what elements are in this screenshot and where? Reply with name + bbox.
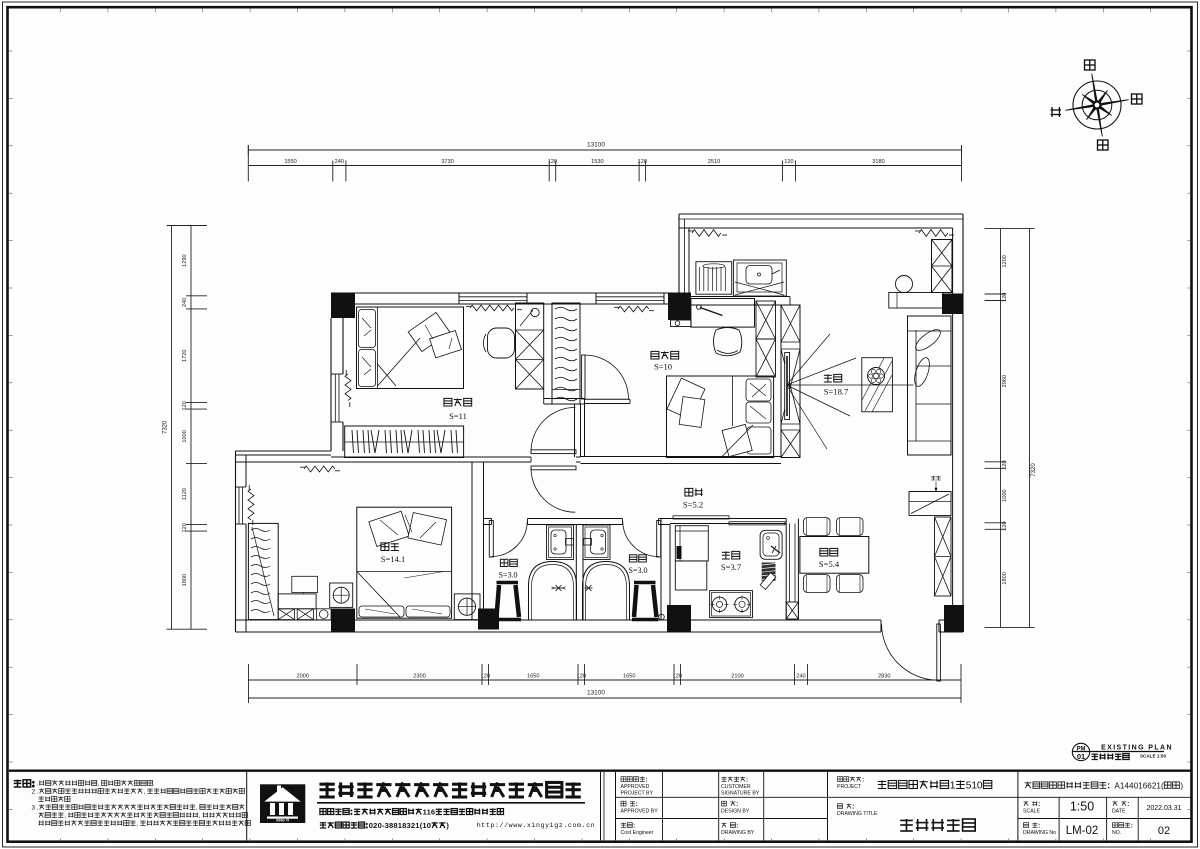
svg-text:A144016621(: A144016621( <box>1114 781 1164 790</box>
svg-text:DESIGN BY: DESIGN BY <box>721 809 750 815</box>
svg-text:2022.03.31: 2022.03.31 <box>1146 805 1181 812</box>
svg-text:APPROVED: APPROVED <box>621 784 650 790</box>
svg-text:02: 02 <box>1158 825 1170 837</box>
svg-text:1800: 1800 <box>182 574 188 586</box>
svg-text:,: , <box>98 781 100 788</box>
svg-text:120: 120 <box>182 401 188 410</box>
svg-text:240: 240 <box>335 159 344 165</box>
svg-text:020-38818321(10: 020-38818321(10 <box>369 821 431 830</box>
svg-text:2100: 2100 <box>731 674 743 680</box>
svg-text:2300: 2300 <box>413 674 425 680</box>
svg-text:7320: 7320 <box>163 420 169 434</box>
svg-text:S=18.7: S=18.7 <box>824 387 848 397</box>
svg-text:120: 120 <box>481 674 490 680</box>
svg-text:,: , <box>136 821 138 828</box>
svg-text:APPROVED BY: APPROVED BY <box>621 809 659 815</box>
svg-text:http://www.xingyigz.com.cn: http://www.xingyigz.com.cn <box>477 822 595 829</box>
svg-text:,: , <box>64 813 66 820</box>
svg-text:S=3.0: S=3.0 <box>629 566 648 575</box>
svg-text:120: 120 <box>548 159 557 165</box>
svg-text:S=10: S=10 <box>654 362 672 372</box>
svg-text:2510: 2510 <box>708 159 720 165</box>
svg-text:240: 240 <box>182 298 188 307</box>
svg-text:S=3.7: S=3.7 <box>721 562 741 572</box>
svg-text:7320: 7320 <box>1031 463 1037 477</box>
svg-text:120: 120 <box>1002 521 1008 530</box>
svg-text:S=5.4: S=5.4 <box>819 559 840 569</box>
svg-text:SCALE 1:50: SCALE 1:50 <box>1140 754 1166 759</box>
svg-text:120: 120 <box>577 674 586 680</box>
svg-text:EXISTING PLAN: EXISTING PLAN <box>1101 745 1173 752</box>
svg-text:): ) <box>1180 781 1183 790</box>
svg-text:120: 120 <box>182 523 188 532</box>
svg-text:LM-02: LM-02 <box>1066 825 1099 837</box>
svg-text:1120: 1120 <box>182 488 188 500</box>
svg-text:1000: 1000 <box>1002 489 1008 501</box>
svg-text:1550: 1550 <box>284 159 296 165</box>
svg-text:1: 1 <box>950 781 956 792</box>
svg-text:Cost Engineer: Cost Engineer <box>621 830 654 836</box>
svg-text:2960: 2960 <box>1002 375 1008 387</box>
svg-text:116: 116 <box>423 808 435 817</box>
svg-text:13100: 13100 <box>587 142 605 149</box>
svg-text:240: 240 <box>796 674 805 680</box>
svg-text:PROJECT BY: PROJECT BY <box>621 791 654 797</box>
svg-text:2830: 2830 <box>878 674 890 680</box>
svg-text:510: 510 <box>966 781 983 792</box>
svg-text:01: 01 <box>1077 752 1085 761</box>
svg-text:1200: 1200 <box>1002 255 1008 267</box>
svg-text:,: , <box>143 789 145 796</box>
svg-text:PROJECT: PROJECT <box>837 784 862 790</box>
svg-text:1000: 1000 <box>182 430 188 442</box>
svg-text:DRAWING BY: DRAWING BY <box>721 830 755 836</box>
svg-text:1720: 1720 <box>182 350 188 362</box>
svg-text:3180: 3180 <box>872 159 884 165</box>
svg-text:2000: 2000 <box>297 674 309 680</box>
svg-text:1650: 1650 <box>527 674 539 680</box>
svg-text:XING YI: XING YI <box>276 819 289 823</box>
svg-text:1800: 1800 <box>1002 572 1008 584</box>
svg-text:SCALE: SCALE <box>1023 809 1041 815</box>
svg-text:NO.: NO. <box>1112 830 1121 836</box>
svg-text:,: , <box>196 805 198 812</box>
svg-text:S=5.2: S=5.2 <box>683 500 703 510</box>
svg-text:1650: 1650 <box>623 674 635 680</box>
svg-text:13100: 13100 <box>587 690 605 697</box>
svg-text:S=11: S=11 <box>449 411 467 421</box>
svg-text:120: 120 <box>1002 460 1008 469</box>
svg-text:3730: 3730 <box>441 159 453 165</box>
svg-text:1290: 1290 <box>182 254 188 266</box>
svg-text:120: 120 <box>784 159 793 165</box>
svg-text:S=3.0: S=3.0 <box>499 571 518 580</box>
svg-text:DRAWING TITLE: DRAWING TITLE <box>837 811 878 817</box>
svg-text:120: 120 <box>1002 293 1008 302</box>
svg-text:S=14.1: S=14.1 <box>381 554 405 564</box>
svg-text:1:50: 1:50 <box>1070 800 1094 814</box>
svg-text:SIGNATURE BY: SIGNATURE BY <box>721 791 760 797</box>
svg-text:120: 120 <box>673 674 682 680</box>
svg-text:CUSTOMER: CUSTOMER <box>721 784 751 790</box>
svg-text:120: 120 <box>638 159 647 165</box>
svg-text:1530: 1530 <box>591 159 603 165</box>
svg-text:DATE: DATE <box>1112 809 1126 815</box>
svg-text:,: , <box>199 813 201 820</box>
svg-text:DRAWING No: DRAWING No <box>1023 830 1056 836</box>
